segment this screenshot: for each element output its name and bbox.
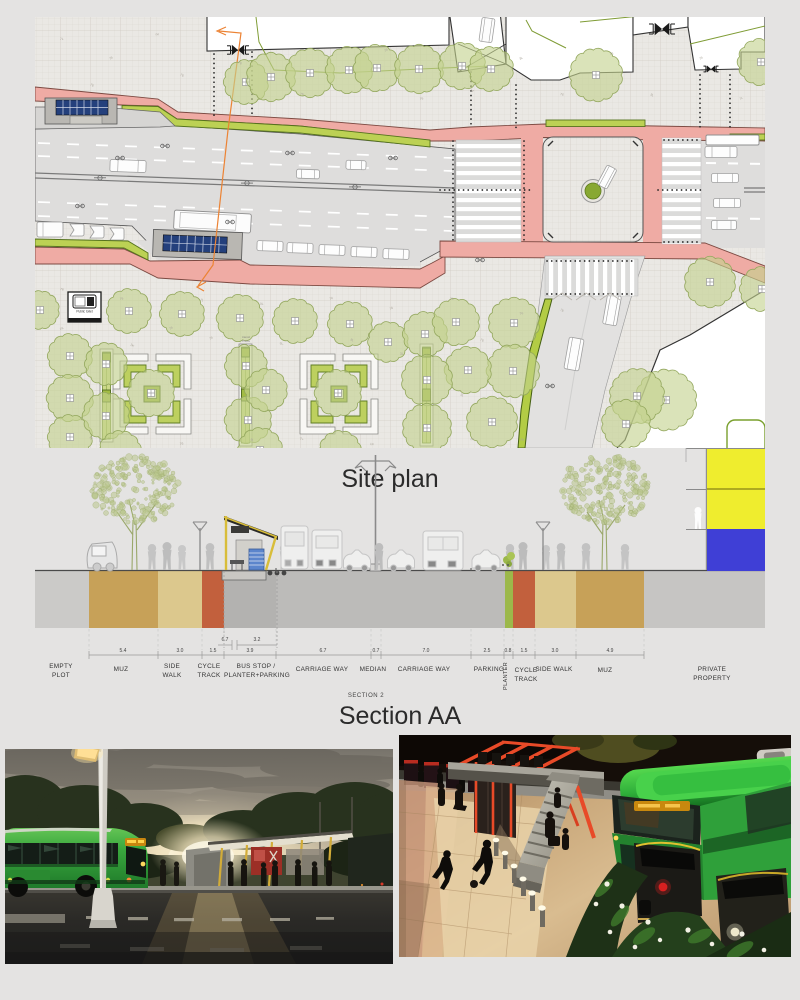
svg-text:4.9: 4.9 (607, 648, 614, 654)
svg-text:CYCLE: CYCLE (198, 663, 221, 670)
svg-text:7L: 7L (60, 37, 64, 41)
svg-text:6.7: 6.7 (222, 637, 229, 643)
svg-text:SECTION 2: SECTION 2 (348, 693, 384, 699)
svg-text:EMPTY: EMPTY (49, 663, 73, 670)
svg-text:76: 76 (300, 92, 304, 96)
svg-text:Plaza: Plaza (242, 339, 250, 343)
svg-text:PROPERTY: PROPERTY (693, 675, 731, 682)
svg-text:3.0: 3.0 (552, 648, 559, 654)
svg-text:CYCLE: CYCLE (515, 667, 538, 674)
svg-text:MEDIAN: MEDIAN (360, 666, 387, 673)
svg-text:Section AA: Section AA (339, 702, 462, 730)
svg-text:3L: 3L (260, 302, 264, 306)
svg-text:PRIVATE: PRIVATE (698, 666, 727, 673)
svg-text:0.8: 0.8 (505, 648, 512, 654)
svg-text:0.7: 0.7 (373, 648, 380, 654)
svg-text:MUZ: MUZ (114, 666, 129, 673)
svg-text:3.9: 3.9 (247, 648, 254, 654)
svg-text:1.5: 1.5 (521, 648, 528, 654)
svg-text:TRACK: TRACK (514, 676, 538, 683)
svg-text:CARRIAGE WAY: CARRIAGE WAY (398, 666, 451, 673)
svg-text:1.5: 1.5 (210, 648, 217, 654)
svg-text:PLOT: PLOT (52, 672, 70, 679)
svg-text:Site plan: Site plan (341, 465, 438, 493)
svg-text:SIDE WALK: SIDE WALK (535, 666, 573, 673)
svg-text:PARKING: PARKING (474, 666, 504, 673)
svg-text:CARRIAGE WAY: CARRIAGE WAY (296, 666, 349, 673)
svg-text:MUZ: MUZ (598, 667, 613, 674)
svg-text:Public toilet: Public toilet (76, 310, 92, 314)
svg-text:3.2: 3.2 (254, 637, 261, 643)
svg-text:BUS STOP /: BUS STOP / (237, 663, 276, 670)
svg-text:WALK: WALK (162, 672, 182, 679)
svg-text:3L: 3L (400, 352, 404, 356)
svg-text:SIDE: SIDE (164, 663, 180, 670)
svg-text:PLANTER+PARKING: PLANTER+PARKING (224, 672, 290, 679)
svg-text:6.7: 6.7 (320, 648, 327, 654)
svg-text:7.0: 7.0 (423, 648, 430, 654)
svg-text:3.0: 3.0 (177, 648, 184, 654)
svg-text:14: 14 (370, 442, 374, 446)
svg-text:76: 76 (450, 297, 454, 301)
svg-text:2.5: 2.5 (484, 648, 491, 654)
svg-text:PLANTER: PLANTER (503, 662, 509, 690)
svg-text:5.4: 5.4 (120, 648, 127, 654)
svg-text:TRACK: TRACK (197, 672, 221, 679)
